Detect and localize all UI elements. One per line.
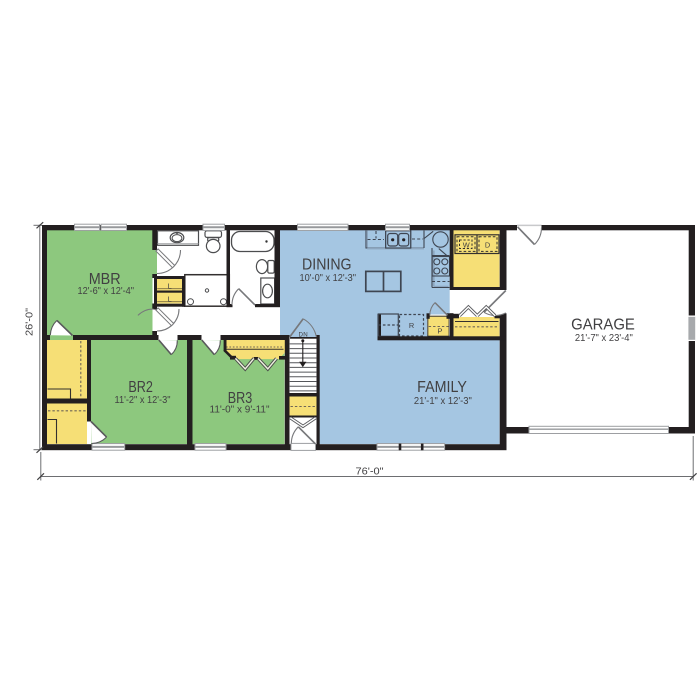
- svg-text:W: W: [463, 241, 470, 250]
- svg-text:R: R: [409, 321, 414, 330]
- svg-text:DINING: DINING: [302, 257, 352, 274]
- svg-text:10'-0" x 12'-3": 10'-0" x 12'-3": [300, 272, 357, 284]
- svg-text:21'-1" x 12'-3": 21'-1" x 12'-3": [414, 395, 472, 407]
- svg-text:D: D: [485, 241, 490, 250]
- svg-text:76'-0": 76'-0": [356, 465, 384, 477]
- svg-text:L: L: [168, 295, 172, 304]
- svg-text:FAMILY: FAMILY: [417, 379, 467, 396]
- svg-text:12'-6" x 12'-4": 12'-6" x 12'-4": [78, 285, 135, 297]
- svg-text:26'-0": 26'-0": [24, 308, 36, 336]
- svg-text:P: P: [438, 327, 443, 336]
- svg-text:L: L: [168, 282, 172, 291]
- svg-text:DN: DN: [299, 331, 309, 338]
- svg-text:21'-7" x 23'-4": 21'-7" x 23'-4": [575, 332, 633, 344]
- svg-text:11'-0" x 9'-11": 11'-0" x 9'-11": [210, 403, 270, 415]
- svg-text:11'-2" x 12'-3": 11'-2" x 12'-3": [115, 394, 171, 406]
- svg-text:GARAGE: GARAGE: [571, 316, 635, 333]
